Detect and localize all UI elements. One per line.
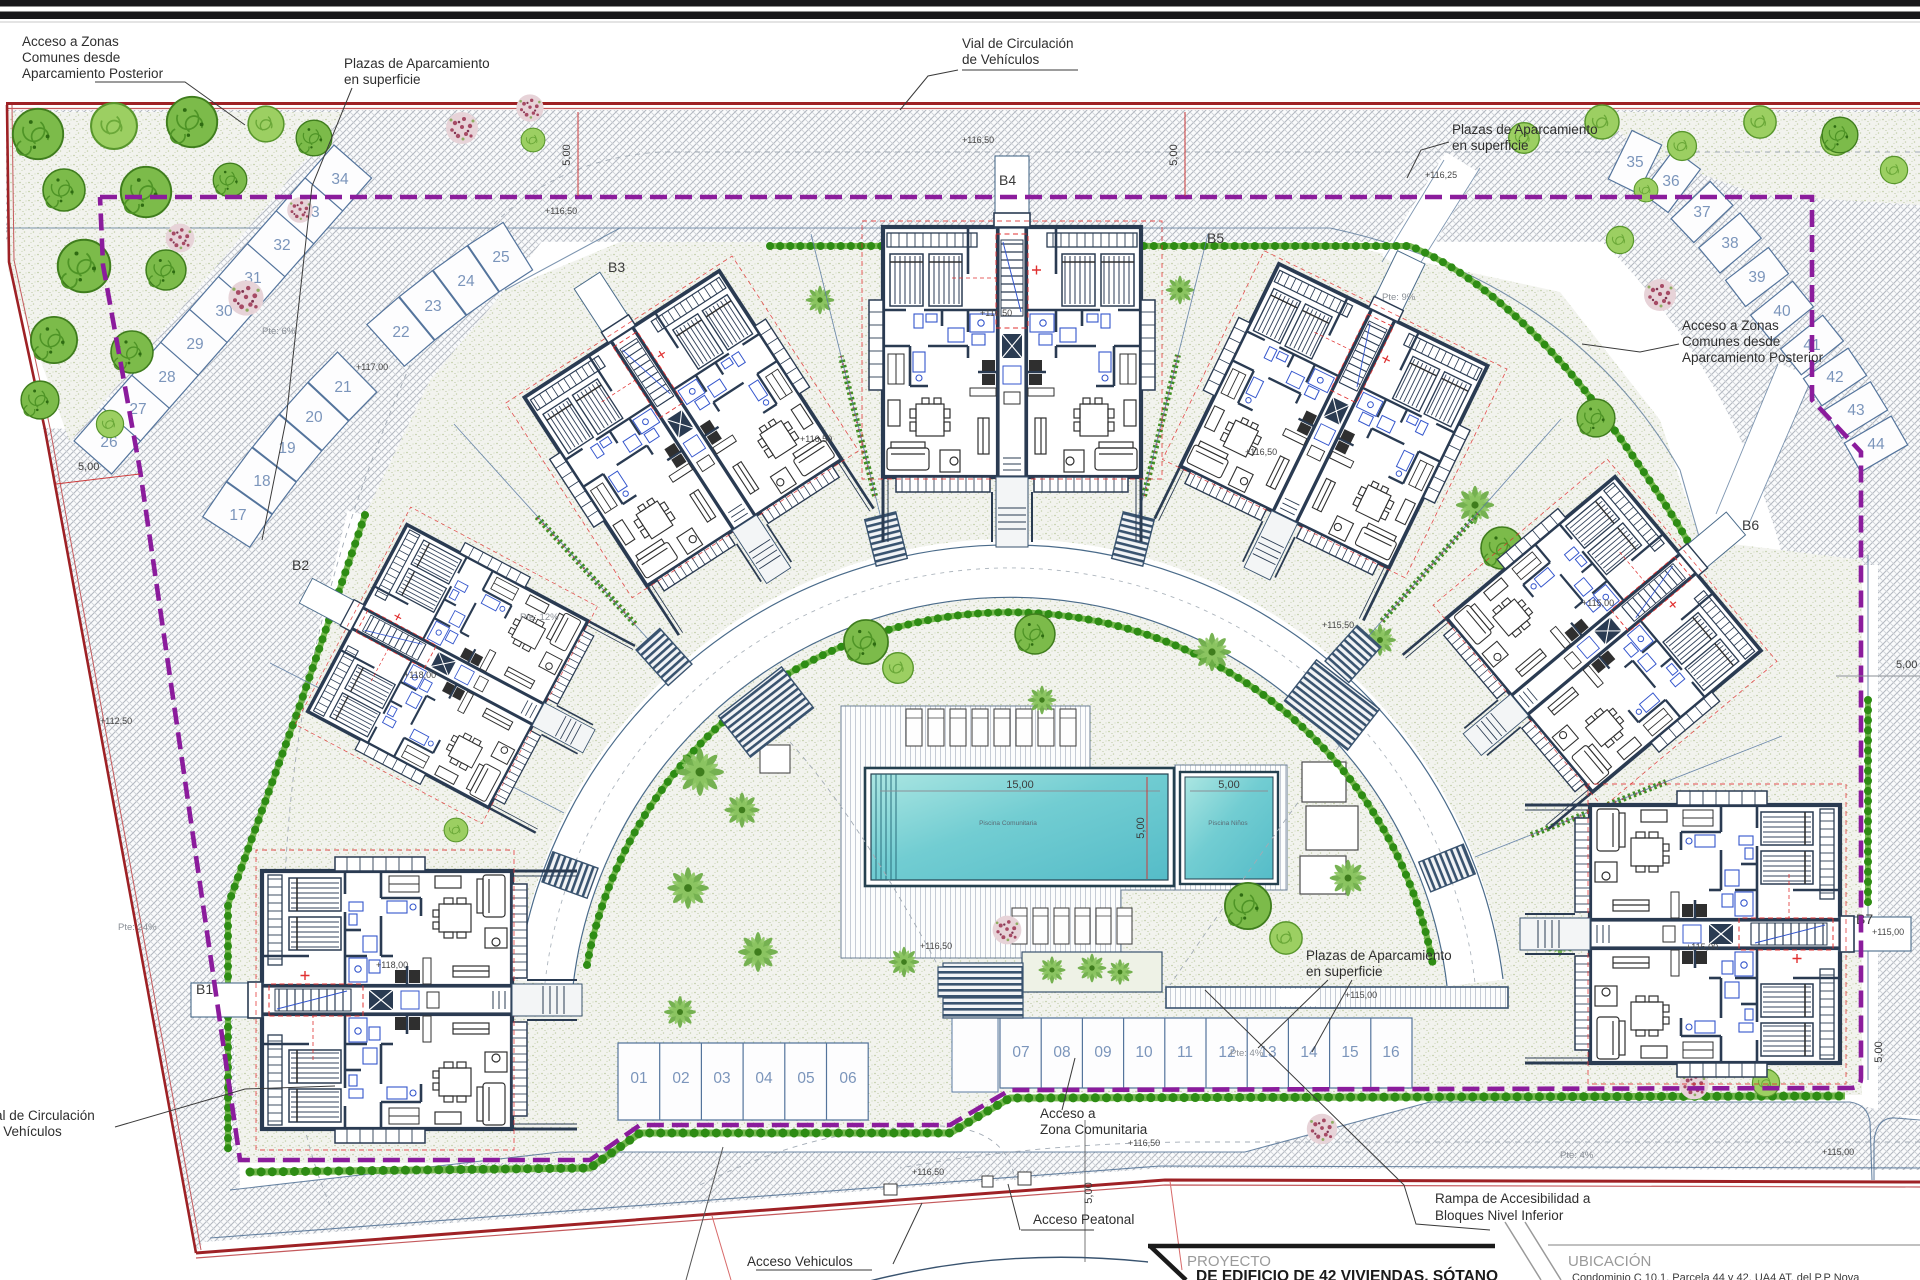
svg-text:+115,00: +115,00 xyxy=(1872,927,1904,937)
svg-text:23: 23 xyxy=(424,298,441,315)
svg-text:DE EDIFICIO DE 42 VIVIENDAS, S: DE EDIFICIO DE 42 VIVIENDAS, SÓTANO xyxy=(1196,1267,1498,1280)
svg-text:21: 21 xyxy=(334,379,351,396)
svg-text:Plazas de Aparcamiento: Plazas de Aparcamiento xyxy=(1452,122,1598,137)
svg-text:39: 39 xyxy=(1748,269,1765,286)
svg-text:B4: B4 xyxy=(999,172,1016,188)
svg-text:e Vehículos: e Vehículos xyxy=(0,1124,62,1139)
svg-text:Plazas de Aparcamiento: Plazas de Aparcamiento xyxy=(344,56,490,71)
svg-text:+112,50: +112,50 xyxy=(100,716,132,726)
svg-text:11: 11 xyxy=(1177,1044,1193,1061)
svg-text:43: 43 xyxy=(1847,402,1864,419)
svg-text:+116,50: +116,50 xyxy=(545,206,577,216)
svg-text:+116,25: +116,25 xyxy=(1425,170,1457,180)
svg-text:ial de Circulación: ial de Circulación xyxy=(0,1108,95,1123)
svg-text:08: 08 xyxy=(1053,1044,1070,1061)
svg-text:UBICACIÓN: UBICACIÓN xyxy=(1568,1253,1651,1270)
svg-text:Comunes desde: Comunes desde xyxy=(1682,334,1780,349)
svg-text:+116,50: +116,50 xyxy=(980,308,1012,318)
svg-text:B3: B3 xyxy=(608,259,625,275)
svg-text:Rampa de Accesibilidad a: Rampa de Accesibilidad a xyxy=(1435,1191,1591,1206)
svg-text:36: 36 xyxy=(1662,173,1679,190)
svg-text:+115,50: +115,50 xyxy=(1322,620,1354,630)
svg-text:Vial de Circulación: Vial de Circulación xyxy=(962,36,1074,51)
svg-text:Acceso Peatonal: Acceso Peatonal xyxy=(1033,1212,1134,1227)
svg-text:06: 06 xyxy=(839,1070,856,1087)
svg-text:42: 42 xyxy=(1826,369,1843,386)
svg-text:+116,50: +116,50 xyxy=(912,1167,944,1177)
svg-text:+118,00: +118,00 xyxy=(404,670,436,680)
svg-text:+118,00: +118,00 xyxy=(376,960,408,970)
svg-text:Pte: 4%: Pte: 4% xyxy=(1560,1150,1594,1161)
svg-text:Acceso a Zonas: Acceso a Zonas xyxy=(1682,318,1779,333)
svg-text:07: 07 xyxy=(1012,1044,1029,1061)
svg-text:+116,50: +116,50 xyxy=(1245,447,1277,457)
svg-text:Aparcamiento Posterior: Aparcamiento Posterior xyxy=(22,66,164,81)
svg-text:Plazas de Aparcamiento: Plazas de Aparcamiento xyxy=(1306,948,1452,963)
svg-text:02: 02 xyxy=(672,1070,689,1087)
svg-text:Piscina Niños: Piscina Niños xyxy=(1208,820,1248,827)
svg-text:B7: B7 xyxy=(1856,911,1873,927)
svg-text:B1: B1 xyxy=(196,981,213,997)
svg-text:Acceso a Zonas: Acceso a Zonas xyxy=(22,34,119,49)
svg-text:Comunes desde: Comunes desde xyxy=(22,50,120,65)
svg-text:5,00: 5,00 xyxy=(1896,659,1917,671)
svg-text:29: 29 xyxy=(186,336,203,353)
svg-text:Pte: 24%: Pte: 24% xyxy=(118,922,157,933)
svg-text:10: 10 xyxy=(1135,1044,1153,1061)
svg-text:Pte: 4%: Pte: 4% xyxy=(1230,1048,1264,1059)
svg-text:Aparcamiento Posterior: Aparcamiento Posterior xyxy=(1682,350,1824,365)
svg-text:en superficie: en superficie xyxy=(1306,964,1383,979)
svg-text:5,00: 5,00 xyxy=(1083,1182,1095,1203)
svg-text:5,00: 5,00 xyxy=(561,144,573,165)
svg-text:de Vehículos: de Vehículos xyxy=(962,52,1040,67)
svg-text:03: 03 xyxy=(713,1070,730,1087)
svg-text:24: 24 xyxy=(457,273,475,290)
svg-text:+116,50: +116,50 xyxy=(1128,1138,1160,1148)
svg-text:Pte: 9%: Pte: 9% xyxy=(1382,292,1416,303)
svg-text:09: 09 xyxy=(1094,1044,1111,1061)
svg-text:05: 05 xyxy=(797,1070,814,1087)
svg-text:Bloques Nivel Inferior: Bloques Nivel Inferior xyxy=(1435,1208,1564,1223)
svg-text:en superficie: en superficie xyxy=(344,72,421,87)
svg-text:5,00: 5,00 xyxy=(1135,817,1147,838)
svg-text:19: 19 xyxy=(278,440,295,457)
svg-text:Pte: 12%: Pte: 12% xyxy=(520,612,559,623)
svg-text:32: 32 xyxy=(273,237,290,254)
svg-text:Zona Comunitaria: Zona Comunitaria xyxy=(1040,1122,1148,1137)
svg-text:+115,00: +115,00 xyxy=(1822,1147,1854,1157)
svg-text:+116,50: +116,50 xyxy=(800,434,832,444)
svg-text:5,00: 5,00 xyxy=(1873,1041,1885,1062)
svg-text:15: 15 xyxy=(1341,1044,1358,1061)
svg-text:5,00: 5,00 xyxy=(1168,144,1180,165)
svg-text:01: 01 xyxy=(630,1070,647,1087)
svg-text:+115,00: +115,00 xyxy=(1686,942,1718,952)
svg-text:B2: B2 xyxy=(292,557,309,573)
svg-text:en superficie: en superficie xyxy=(1452,138,1529,153)
svg-text:+115,00: +115,00 xyxy=(1345,990,1377,1000)
svg-text:+116,50: +116,50 xyxy=(962,135,994,145)
svg-text:Condominio C 10.1, Parcela 44: Condominio C 10.1, Parcela 44 y 42, UA4 … xyxy=(1572,1272,1860,1280)
svg-text:35: 35 xyxy=(1626,154,1643,171)
svg-text:Acceso Vehiculos: Acceso Vehiculos xyxy=(747,1254,853,1269)
svg-text:15,00: 15,00 xyxy=(1006,779,1034,791)
svg-text:B6: B6 xyxy=(1742,517,1759,533)
svg-text:22: 22 xyxy=(392,324,409,341)
svg-text:16: 16 xyxy=(1382,1044,1399,1061)
svg-text:+115,00: +115,00 xyxy=(1582,598,1614,608)
svg-text:04: 04 xyxy=(755,1070,773,1087)
svg-text:44: 44 xyxy=(1867,436,1885,453)
svg-text:34: 34 xyxy=(331,171,349,188)
svg-text:18: 18 xyxy=(253,473,270,490)
svg-text:25: 25 xyxy=(492,249,509,266)
svg-text:+116,50: +116,50 xyxy=(920,941,952,951)
svg-text:Piscina Comunitaria: Piscina Comunitaria xyxy=(979,820,1037,827)
svg-text:17: 17 xyxy=(229,507,246,524)
svg-text:Acceso a: Acceso a xyxy=(1040,1106,1096,1121)
svg-text:28: 28 xyxy=(158,369,175,386)
svg-text:5,00: 5,00 xyxy=(1218,779,1239,791)
svg-text:+117,00: +117,00 xyxy=(356,362,388,372)
svg-text:38: 38 xyxy=(1721,235,1738,252)
svg-text:37: 37 xyxy=(1693,204,1710,221)
svg-text:Pte: 6%: Pte: 6% xyxy=(262,326,296,337)
svg-text:5,00: 5,00 xyxy=(78,461,99,473)
svg-text:B5: B5 xyxy=(1207,230,1224,246)
svg-text:20: 20 xyxy=(305,409,323,426)
